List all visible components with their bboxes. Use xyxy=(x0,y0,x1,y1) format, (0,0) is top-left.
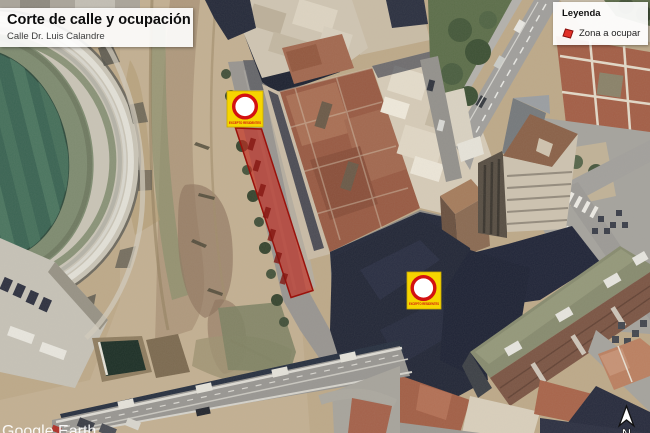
svg-text:Google Earth: Google Earth xyxy=(2,423,96,433)
svg-text:N: N xyxy=(622,426,631,433)
svg-text:EXCEPTO RESIDENTES: EXCEPTO RESIDENTES xyxy=(229,121,262,125)
svg-text:EXCEPTO RESIDENTES: EXCEPTO RESIDENTES xyxy=(409,302,440,306)
